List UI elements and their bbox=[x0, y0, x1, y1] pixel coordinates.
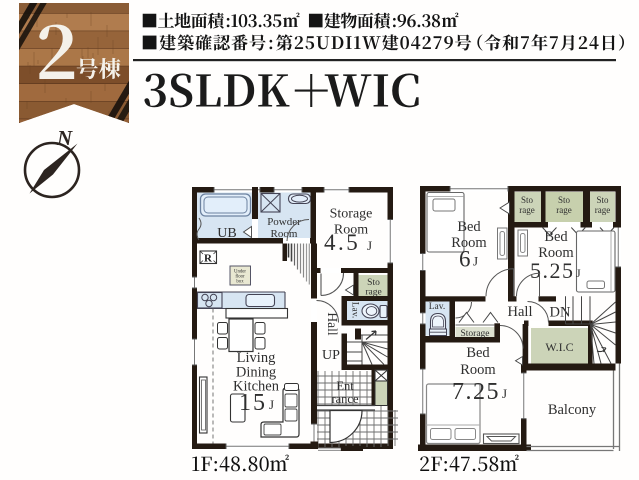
svg-text:rage: rage bbox=[365, 288, 381, 298]
svg-text:N: N bbox=[56, 126, 73, 150]
svg-text:Powder: Powder bbox=[267, 216, 301, 228]
svg-text:Hall: Hall bbox=[508, 304, 533, 320]
svg-text:Bed: Bed bbox=[457, 219, 481, 235]
svg-text:J: J bbox=[367, 238, 372, 253]
svg-text:Storage: Storage bbox=[330, 207, 373, 222]
svg-text:Sto: Sto bbox=[521, 195, 534, 205]
svg-text:UP: UP bbox=[322, 348, 340, 363]
svg-text:Balcony: Balcony bbox=[548, 402, 597, 418]
svg-text:rage: rage bbox=[556, 205, 572, 215]
svg-text:J: J bbox=[473, 254, 478, 269]
svg-text:Sto: Sto bbox=[367, 278, 380, 288]
svg-text:J: J bbox=[269, 397, 274, 412]
svg-text:7.25: 7.25 bbox=[452, 379, 500, 405]
svg-text:Ent: Ent bbox=[336, 379, 354, 393]
svg-text:rage: rage bbox=[595, 205, 611, 215]
svg-text:4.5: 4.5 bbox=[324, 230, 360, 255]
svg-text:rage: rage bbox=[519, 205, 535, 215]
svg-text:15: 15 bbox=[239, 390, 267, 416]
svg-text:J: J bbox=[576, 266, 581, 280]
svg-text:5.25: 5.25 bbox=[530, 258, 575, 283]
svg-text:box: box bbox=[236, 280, 244, 285]
svg-text:Lav.: Lav. bbox=[429, 302, 446, 312]
svg-text:Storage: Storage bbox=[460, 329, 489, 339]
svg-text:Lav.: Lav. bbox=[350, 302, 360, 319]
svg-text:Sto: Sto bbox=[558, 195, 571, 205]
svg-text:Bed: Bed bbox=[466, 345, 490, 361]
svg-text:UB: UB bbox=[217, 226, 236, 241]
svg-text:Bed: Bed bbox=[544, 229, 568, 245]
svg-text:Sto: Sto bbox=[596, 195, 609, 205]
svg-text:Room: Room bbox=[271, 228, 298, 240]
svg-text:DN: DN bbox=[550, 305, 571, 321]
svg-text:J: J bbox=[502, 386, 507, 401]
svg-text:rance: rance bbox=[331, 392, 359, 406]
svg-text:R: R bbox=[204, 253, 213, 265]
svg-text:6: 6 bbox=[459, 247, 471, 272]
svg-text:W.I.C: W.I.C bbox=[545, 340, 573, 354]
svg-text:Room: Room bbox=[460, 362, 496, 378]
